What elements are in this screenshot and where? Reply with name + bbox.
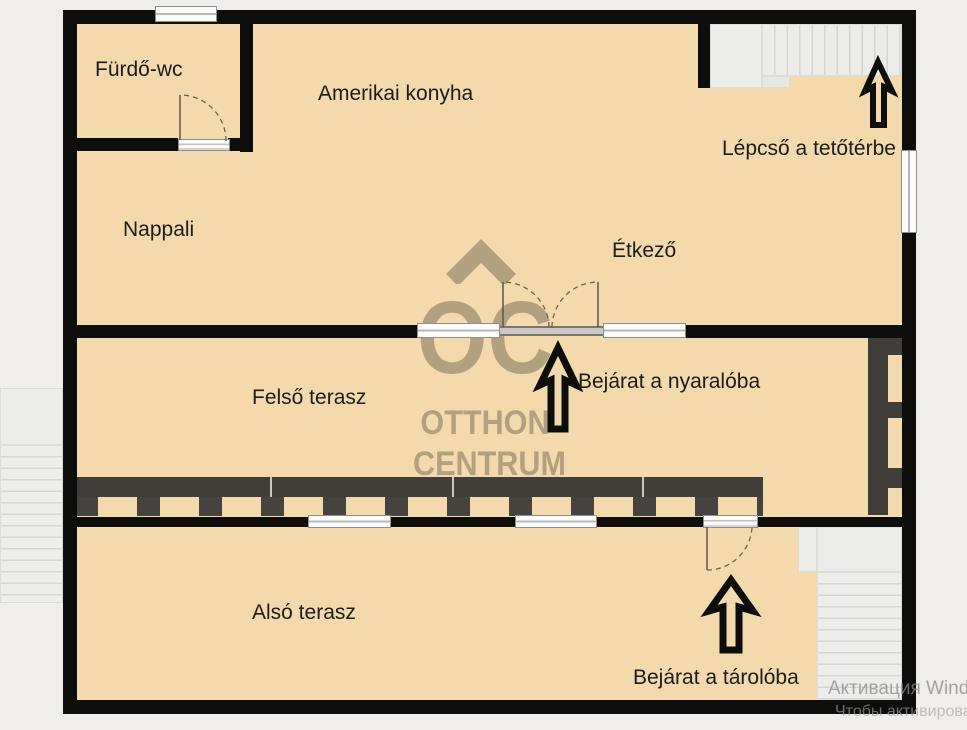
wall-bathroom-south (63, 138, 178, 151)
terrace-railing-east-arm (888, 338, 902, 355)
wall-terraces-d (758, 517, 902, 527)
window-living-south-1 (417, 323, 500, 338)
room-label-felso-terasz: Felső terasz (252, 386, 366, 410)
terrace-railing-east (868, 335, 888, 515)
staircase-outside-left-landing (0, 388, 63, 445)
wall-bathroom-east (240, 10, 253, 152)
wall-left (63, 10, 77, 714)
wall-terraces-c (597, 517, 703, 527)
terrace-railing-east-arm (888, 402, 902, 418)
annotation-bejarat-nyaraloba: Bejárat a nyaralóba (578, 370, 760, 394)
staircase-attic-steps (762, 24, 902, 76)
door-sill-storage (703, 515, 758, 528)
terrace-railing-posts (75, 497, 763, 516)
windows-activation-watermark-line2: Чтобы активировать (835, 703, 967, 721)
window-terrace-1 (308, 515, 391, 528)
wall-living-terrace-b (686, 325, 902, 338)
window-east (901, 150, 917, 233)
annotation-lepcso-tetoterbe: Lépcső a tetőtérbe (722, 137, 896, 161)
terrace-railing-east-arm (888, 468, 902, 488)
room-label-etkezo: Étkező (612, 239, 676, 263)
wall-right (902, 10, 916, 714)
staircase-attic-landing (710, 24, 762, 88)
window-bathroom-north (155, 6, 217, 22)
wall-terraces-b (391, 517, 515, 527)
room-label-amerikai-konyha: Amerikai konyha (318, 82, 473, 106)
main-entrance-threshold (500, 326, 603, 336)
oc-logo-text2: CENTRUM (413, 446, 557, 482)
staircase-storage-landing (817, 527, 902, 572)
window-terrace-2 (515, 515, 597, 528)
oc-logo-roof-icon (405, 238, 565, 284)
staircase-outside-left-steps (0, 445, 63, 603)
staircase-attic-landing-edge (762, 76, 790, 88)
wall-terraces-a (63, 517, 308, 527)
railing-joint (642, 477, 644, 497)
wall-living-terrace-a (63, 325, 417, 338)
room-label-also-terasz: Alsó terasz (252, 601, 356, 625)
oc-logo-text1: OTTHON (413, 405, 557, 441)
wall-bathroom-south-stub (228, 138, 253, 151)
floor-plan: OC OTTHON CENTRUM (0, 0, 967, 730)
room-label-nappali: Nappali (123, 218, 194, 242)
door-sill-bathroom (178, 139, 230, 151)
oc-logo-watermark: OC OTTHON CENTRUM (405, 238, 565, 482)
wall-bottom (63, 700, 916, 714)
wall-attic-stairs-west (698, 24, 710, 88)
window-living-south-2 (603, 323, 686, 338)
windows-activation-watermark-line1: Активация Windows (828, 678, 967, 700)
room-label-furdo-wc: Fürdő-wc (95, 58, 183, 82)
annotation-bejarat-taroloba: Bejárat a tárolóba (633, 666, 799, 690)
staircase-storage-landing-ext (798, 527, 817, 572)
railing-joint (270, 477, 272, 497)
